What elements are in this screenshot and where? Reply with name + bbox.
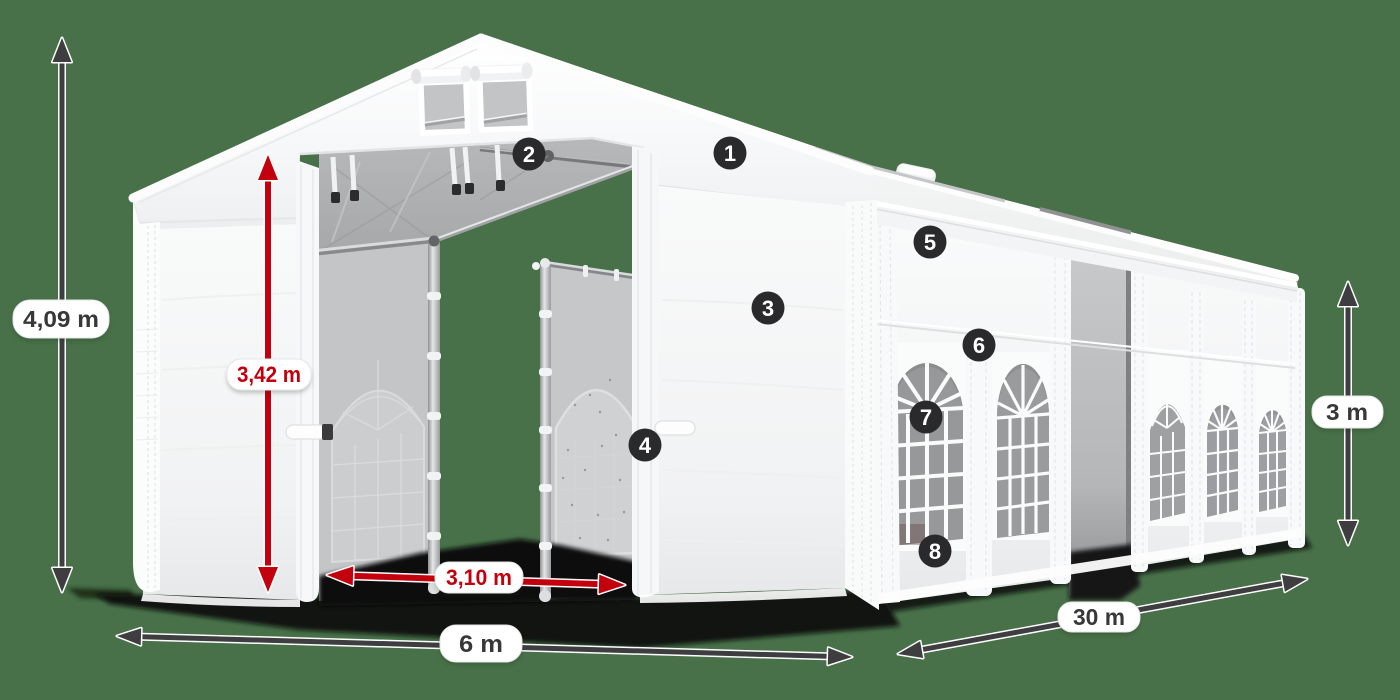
svg-text:3 m: 3 m	[1326, 399, 1368, 425]
svg-text:5: 5	[924, 230, 936, 255]
svg-text:2: 2	[523, 142, 535, 167]
svg-text:3,42 m: 3,42 m	[237, 362, 301, 387]
svg-text:7: 7	[920, 405, 932, 430]
svg-text:6 m: 6 m	[459, 631, 503, 658]
svg-text:4: 4	[639, 433, 652, 458]
svg-text:6: 6	[973, 333, 985, 358]
svg-text:1: 1	[724, 141, 736, 166]
svg-text:4,09 m: 4,09 m	[23, 306, 99, 332]
svg-text:3,10 m: 3,10 m	[446, 565, 512, 590]
svg-text:8: 8	[929, 539, 941, 564]
svg-text:30 m: 30 m	[1073, 604, 1125, 630]
svg-text:3: 3	[762, 296, 774, 321]
